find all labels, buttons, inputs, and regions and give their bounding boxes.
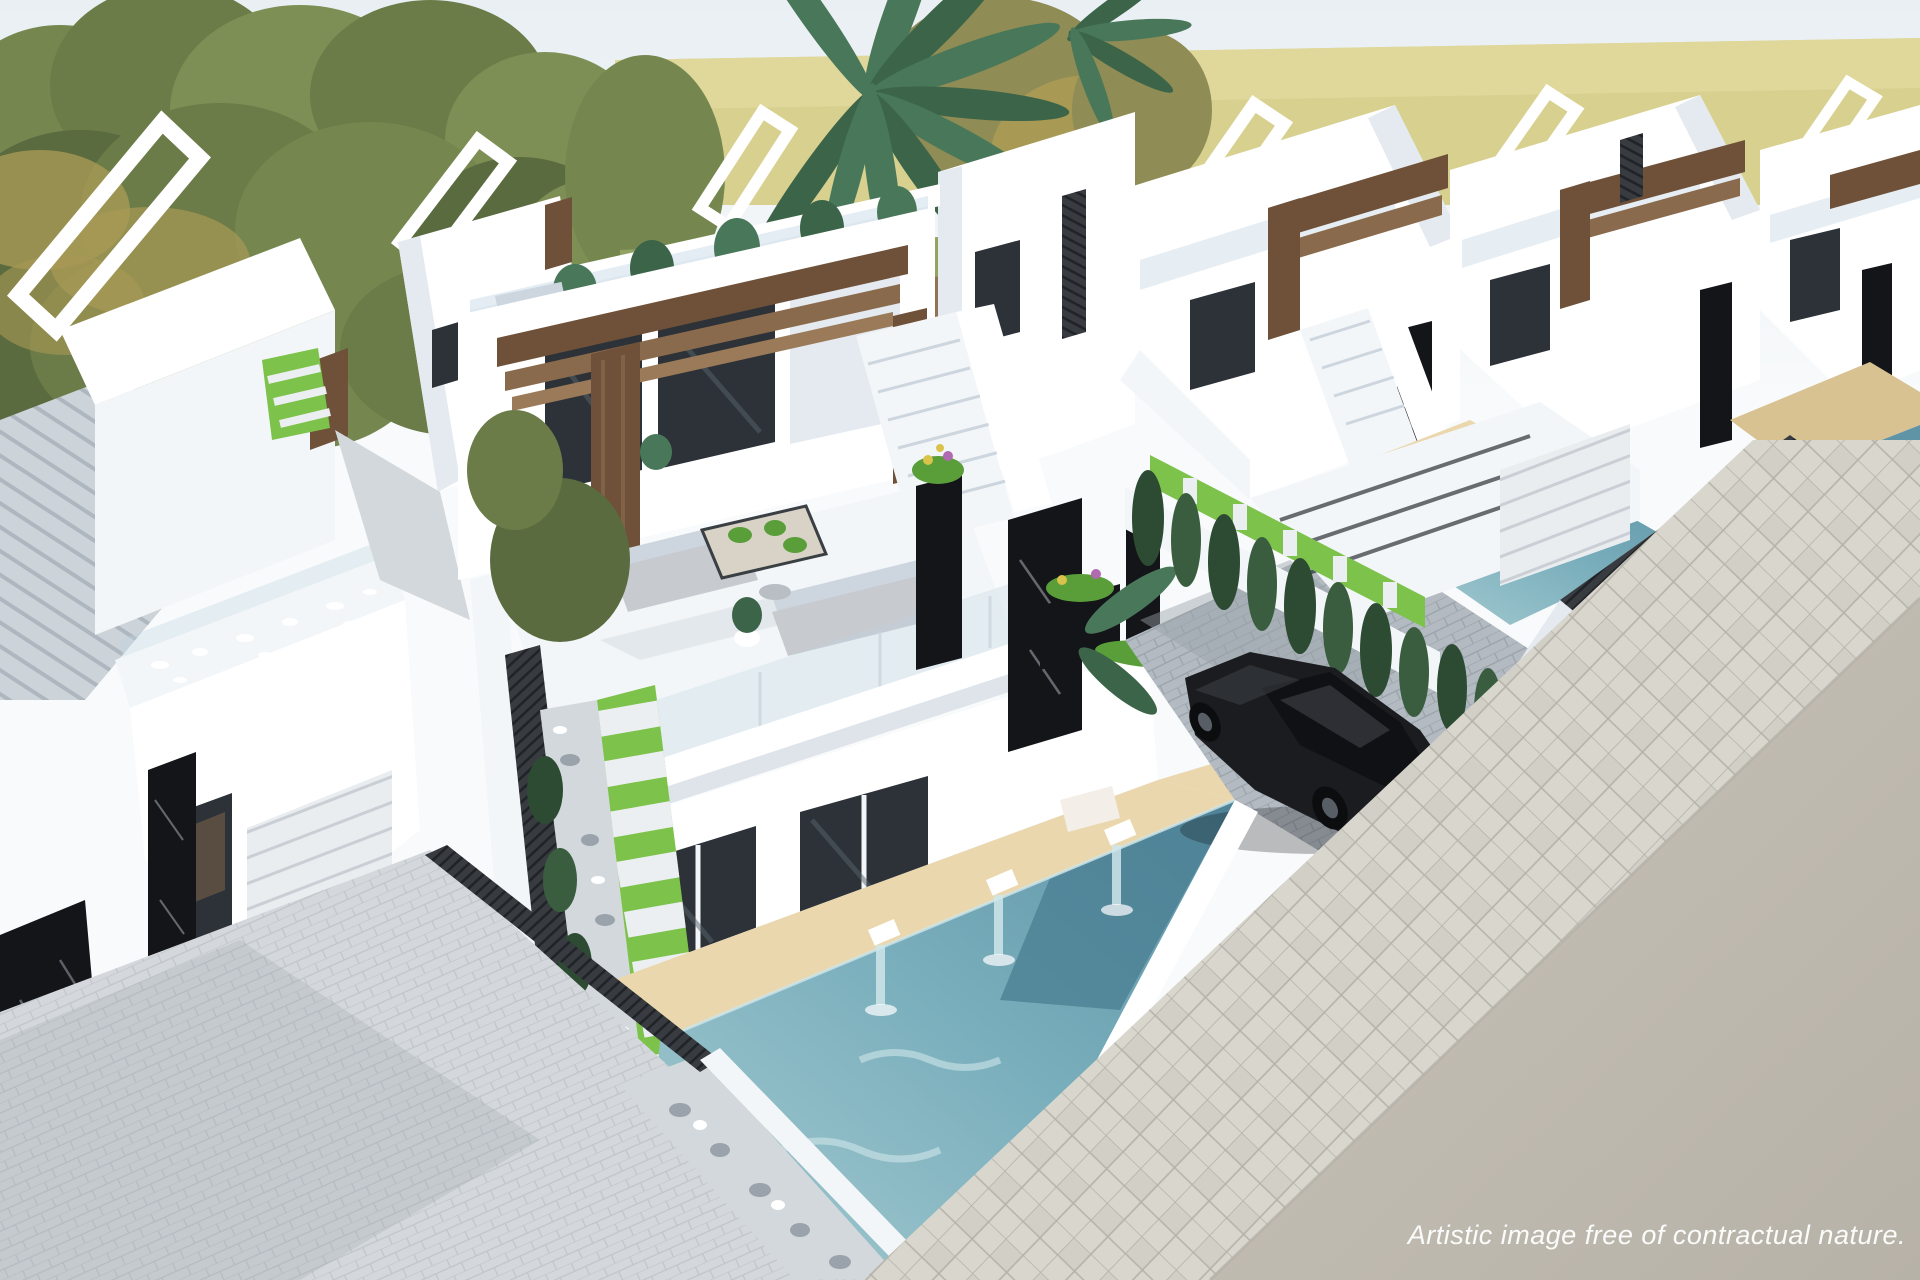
potted-plant [640,434,672,470]
wood-pergola-post [1268,198,1300,340]
window [1490,264,1550,366]
render-canvas [0,0,1920,1280]
wood-accent [545,197,572,270]
garden-tree [467,410,563,530]
disclaimer-caption: Artistic image free of contractual natur… [1408,1220,1906,1251]
wood-slat-panel [1620,133,1643,203]
window [1790,228,1840,322]
garden-bush [527,756,563,824]
wood-slat-panel [1062,189,1086,339]
side-table [759,584,791,600]
wood-pergola-post [1560,181,1590,309]
marble-planter-pillar [916,474,962,670]
window [1190,282,1255,390]
garden-bush [543,848,577,912]
potted-plant [732,597,762,633]
black-marble-pillar [1700,282,1732,448]
architectural-render: Artistic image free of contractual natur… [0,0,1920,1280]
